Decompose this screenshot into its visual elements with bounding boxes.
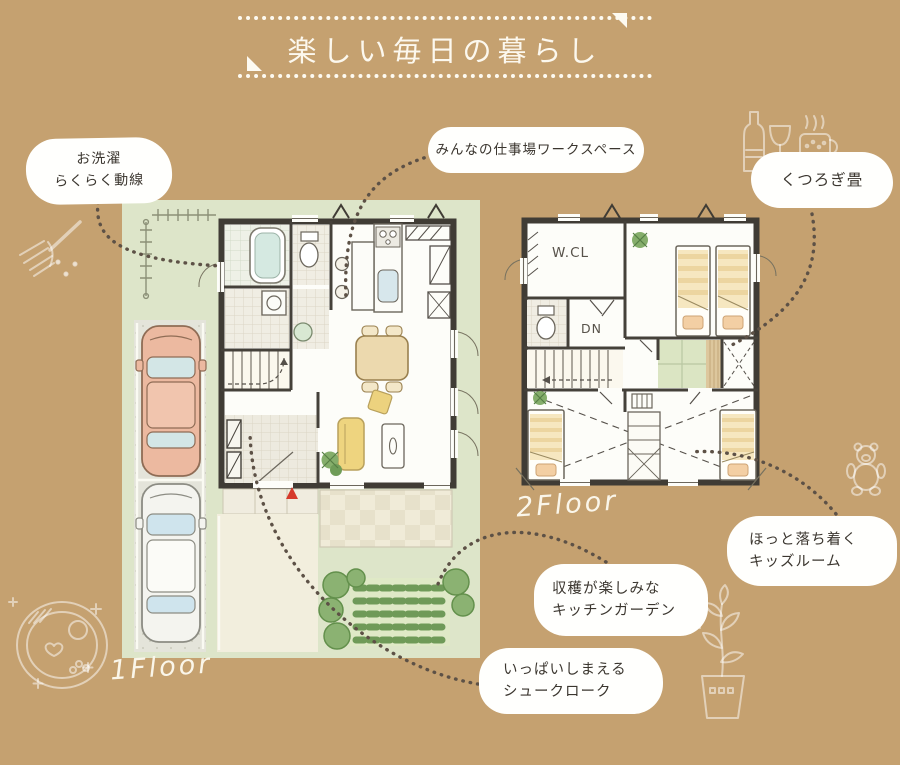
callout-kids-room: ほっと落ち着く キッズルーム bbox=[727, 516, 897, 586]
master-bed-1 bbox=[676, 246, 710, 336]
floor-plan-illustration bbox=[0, 0, 900, 765]
car-top bbox=[136, 326, 206, 476]
callout-tatami-line1: くつろぎ畳 bbox=[751, 168, 893, 192]
sofa bbox=[338, 418, 364, 470]
washroom bbox=[225, 289, 289, 348]
kids-room bbox=[528, 394, 756, 480]
toilet-room-2f bbox=[527, 300, 566, 346]
callout-workspace: みんなの仕事場ワークスペース bbox=[428, 127, 644, 173]
porch bbox=[223, 487, 318, 514]
stairs-1f bbox=[225, 351, 289, 389]
callout-shoe-closet: いっぱいしまえる シュークローク bbox=[479, 648, 663, 714]
indoor-plant-2f-b bbox=[533, 391, 547, 405]
floor-plan-poster: 楽しい毎日の暮らし お洗濯 らくらく動線 みんなの仕事場ワークスペース くつろぎ… bbox=[0, 0, 900, 765]
entrance-genkan bbox=[225, 415, 318, 488]
floor1-plan bbox=[122, 200, 480, 658]
callout-workspace-line1: みんなの仕事場ワークスペース bbox=[428, 140, 644, 161]
car-bottom bbox=[136, 484, 206, 642]
teddy-bear-icon bbox=[847, 444, 885, 496]
callout-laundry-line1: お洗濯 bbox=[26, 148, 172, 172]
stairs-2f bbox=[527, 350, 623, 388]
indoor-plant-2f-a bbox=[632, 232, 648, 248]
toilet-room-1f bbox=[293, 225, 329, 285]
floor2-plan bbox=[505, 205, 776, 490]
callout-shoe-line1: いっぱいしまえる bbox=[503, 659, 663, 681]
walkin-closet-label: W.CL bbox=[552, 245, 589, 261]
fork-icon bbox=[20, 222, 80, 276]
breakfast-plate-icon bbox=[9, 598, 107, 688]
callout-kids-line2: キッズルーム bbox=[749, 551, 897, 573]
terrace bbox=[320, 490, 452, 547]
driveway bbox=[217, 514, 318, 652]
stairs-down-label: DN bbox=[581, 321, 602, 336]
callout-laundry-line2: らくらく動線 bbox=[26, 170, 172, 194]
corridor bbox=[293, 289, 329, 349]
callout-garden-line2: キッチンガーデン bbox=[552, 600, 708, 622]
callout-laundry: お洗濯 らくらく動線 bbox=[25, 137, 172, 206]
tatami-room bbox=[658, 340, 722, 388]
callout-kids-line1: ほっと落ち着く bbox=[749, 529, 897, 551]
callout-kitchen-garden: 収穫が楽しみな キッチンガーデン bbox=[534, 564, 708, 636]
callout-shoe-line2: シュークローク bbox=[503, 681, 663, 703]
callout-tatami: くつろぎ畳 bbox=[751, 152, 893, 208]
callout-garden-line1: 収穫が楽しみな bbox=[552, 578, 708, 600]
master-bed-2 bbox=[716, 246, 750, 336]
bathroom bbox=[225, 225, 289, 286]
tv-board bbox=[382, 424, 404, 468]
